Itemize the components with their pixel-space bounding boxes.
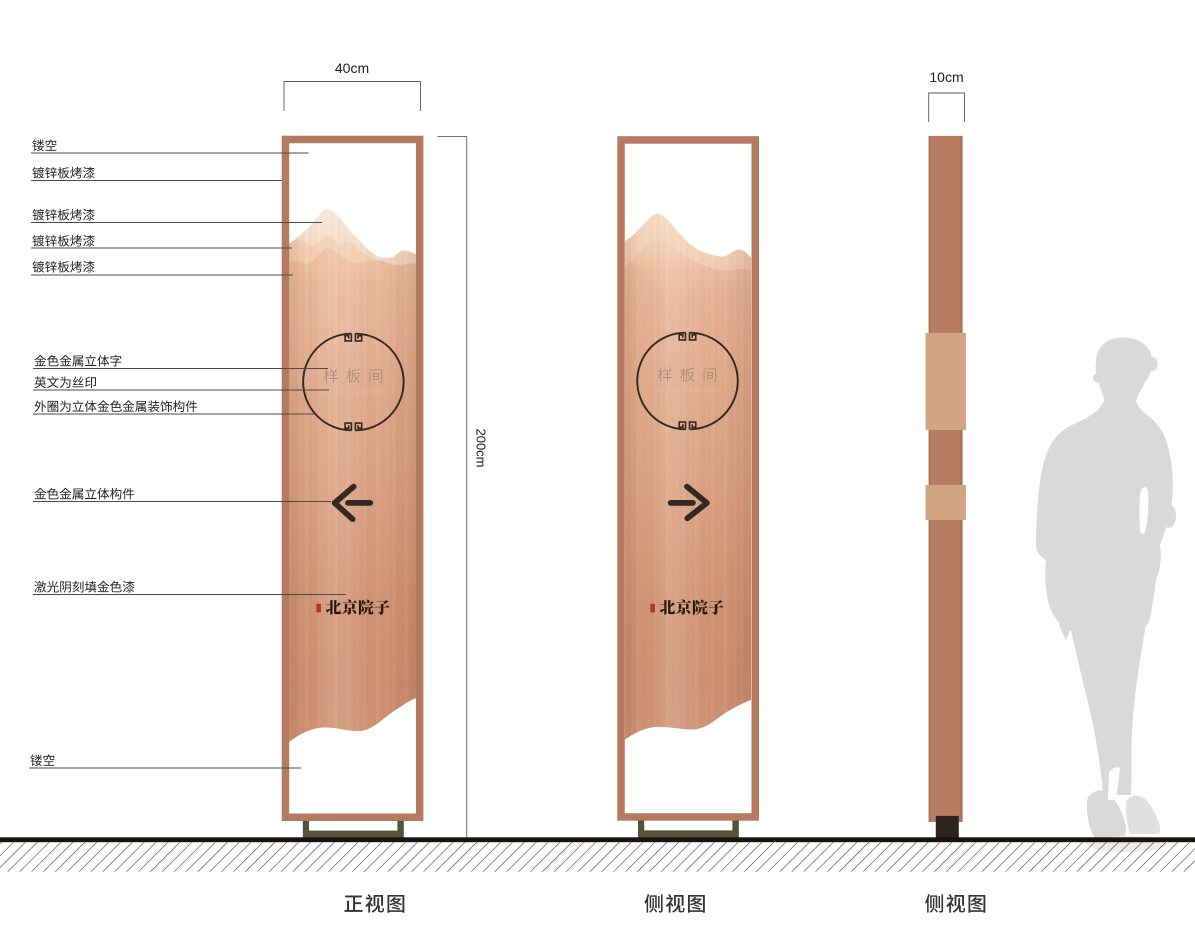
svg-text:200cm: 200cm xyxy=(474,428,489,467)
svg-text:BEIJING COURTYARD: BEIJING COURTYARD xyxy=(320,390,387,396)
svg-text:10cm: 10cm xyxy=(929,69,963,85)
svg-text:40cm: 40cm xyxy=(335,60,369,76)
svg-text:BEIJING COURTYARD: BEIJING COURTYARD xyxy=(654,389,721,395)
